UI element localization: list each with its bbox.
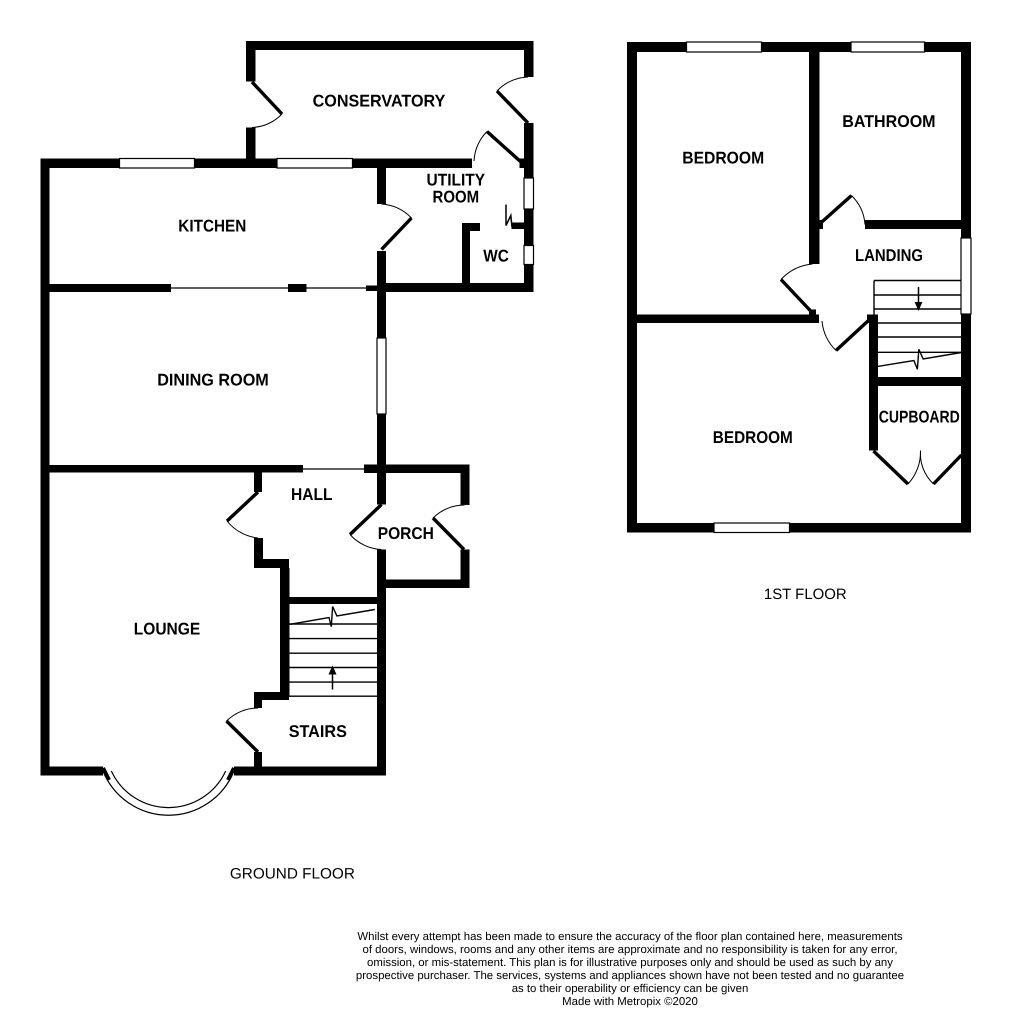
svg-text:HALL: HALL	[291, 485, 333, 504]
svg-text:BATHROOM: BATHROOM	[842, 112, 935, 131]
svg-text:PORCH: PORCH	[378, 524, 434, 543]
svg-text:Made with Metropix ©2020: Made with Metropix ©2020	[562, 996, 698, 1008]
svg-text:CONSERVATORY: CONSERVATORY	[313, 92, 446, 111]
svg-text:LANDING: LANDING	[855, 246, 923, 265]
svg-text:KITCHEN: KITCHEN	[178, 217, 246, 236]
svg-text:BEDROOM: BEDROOM	[682, 148, 764, 167]
svg-text:WC: WC	[483, 247, 509, 266]
svg-text:Whilst every attempt has been: Whilst every attempt has been made to en…	[357, 931, 902, 943]
svg-text:GROUND FLOOR: GROUND FLOOR	[230, 866, 355, 883]
svg-text:of doors, windows, rooms and a: of doors, windows, rooms and any other i…	[363, 944, 898, 956]
svg-text:CUPBOARD: CUPBOARD	[879, 408, 960, 427]
svg-text:prospective purchaser. The ser: prospective purchaser. The services, sys…	[356, 970, 904, 982]
svg-text:1ST FLOOR: 1ST FLOOR	[764, 586, 847, 603]
svg-text:BEDROOM: BEDROOM	[713, 428, 793, 447]
svg-text:STAIRS: STAIRS	[289, 722, 347, 741]
svg-text:DINING ROOM: DINING ROOM	[157, 371, 269, 390]
svg-text:as to their operability or eff: as to their operability or efficiency ca…	[512, 983, 749, 995]
svg-text:omission, or mis-statement. Th: omission, or mis-statement. This plan is…	[367, 957, 893, 969]
svg-text:LOUNGE: LOUNGE	[134, 620, 200, 639]
svg-text:ROOM: ROOM	[433, 188, 480, 207]
